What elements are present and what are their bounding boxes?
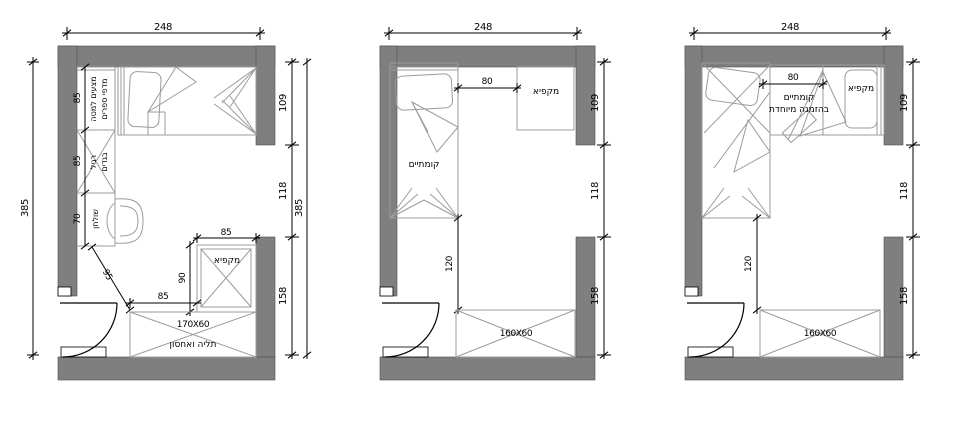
plan-b-clearances: 80 120	[445, 77, 521, 314]
dim-height-total: 385	[20, 199, 31, 217]
closet-size: 170X60	[177, 320, 210, 330]
closet-label: תליה ואחסון	[170, 340, 217, 350]
floor-plan-canvas: 248 385 109 118 158 385	[0, 0, 958, 441]
freezer-label: מקפיא	[214, 256, 240, 266]
bed-label-2: בהזמנה מיוחדת	[769, 105, 829, 115]
blanket	[148, 67, 196, 135]
dim-freezer-width: 85	[221, 228, 232, 238]
dim-clearance: 85	[158, 292, 169, 302]
desk-chair	[107, 199, 143, 244]
plan-c-bunk-bed: מקפיא קומתיים בהזמנה מיוחדת	[702, 63, 884, 218]
dim-clearance: 80	[788, 73, 799, 83]
freezer-label: מקפיא	[533, 87, 559, 97]
bed-label: קומתיים	[409, 160, 440, 170]
wall-top	[685, 46, 903, 67]
wall-left	[58, 46, 77, 296]
door-jamb-notch	[685, 287, 698, 296]
plan-c-dim-top: 248	[689, 22, 891, 40]
closet-size: 160X60	[500, 329, 533, 339]
pillow	[395, 74, 453, 111]
plan-b-dim-top: 248	[384, 22, 582, 40]
wall-bottom	[380, 357, 595, 380]
threshold	[688, 347, 733, 357]
ladder	[782, 110, 816, 142]
closet-size: 160X60	[804, 329, 837, 339]
plan-a-dim-right: 109 118 158 385	[278, 58, 311, 359]
wardrobe-mid-label-2: בגדים	[100, 152, 109, 172]
plan-b-closet: 160X60	[456, 310, 575, 357]
plan-a: 248 385 109 118 158 385	[20, 22, 311, 380]
dim-right-seg3: 158	[590, 287, 601, 305]
wardrobe-top-label-2: מדפי ספרים	[100, 79, 109, 120]
dim-wardrobe-seg2: 85	[73, 156, 83, 167]
plan-b-freezer: מקפיא	[517, 67, 574, 130]
dim-wardrobe-seg3: 70	[73, 213, 83, 224]
wall-right-upper	[256, 46, 275, 145]
desk-label: שולחן	[91, 209, 100, 229]
dim-bed-to-closet: 120	[744, 255, 754, 272]
dim-width: 248	[474, 22, 492, 33]
dim-right-seg1: 109	[590, 94, 601, 112]
dim-right-seg2: 118	[590, 182, 601, 200]
plan-a-bed	[118, 67, 256, 135]
wall-right-lower	[256, 237, 275, 357]
dim-right-seg3: 158	[278, 287, 289, 305]
plan-c-closet: 160X60	[760, 310, 880, 357]
plan-a-dim-top: 248	[62, 22, 265, 40]
dim-width: 248	[154, 22, 172, 33]
wardrobe-mid-label-1: רגיל	[89, 155, 98, 169]
dim-right-seg3: 158	[899, 287, 910, 305]
wall-left	[685, 46, 702, 296]
wall-top	[58, 46, 275, 67]
dim-right-total: 385	[294, 199, 305, 217]
plan-a-wardrobe-column: 85 85 70 מצעים למטה מדפי ספרים רגיל בגדי…	[73, 64, 143, 249]
freezer-label: מקפיא	[848, 84, 874, 94]
door-jamb-notch	[380, 287, 393, 296]
dim-width: 248	[781, 22, 799, 33]
wall-bottom	[58, 357, 275, 380]
floor-plan-drawing: 248 385 109 118 158 385	[0, 0, 958, 441]
plan-b-walls	[380, 46, 595, 380]
wall-top	[380, 46, 595, 67]
dim-right-seg1: 109	[899, 94, 910, 112]
dim-clearance: 80	[482, 77, 493, 87]
dim-wardrobe-seg1: 85	[73, 93, 83, 104]
bed-label-1: קומתיים	[784, 93, 815, 103]
wall-left	[380, 46, 397, 296]
plan-c: 248 109 118 158 מקפיא קומתיים בהזמנה מיו	[685, 22, 920, 380]
threshold	[383, 347, 428, 357]
plan-b: 248 109 118 158 קומתיים מקפיא	[380, 22, 611, 380]
door-jamb-notch	[58, 287, 71, 296]
plan-b-bed: קומתיים	[390, 63, 458, 218]
threshold	[61, 347, 106, 357]
plan-a-closet: 170X60 תליה ואחסון	[130, 312, 256, 357]
dim-right-seg2: 118	[899, 182, 910, 200]
wall-bottom	[685, 357, 903, 380]
dim-right-seg2: 118	[278, 182, 289, 200]
pillow	[705, 67, 761, 107]
wardrobe-top-label-1: מצעים למטה	[89, 76, 98, 121]
dim-right-seg1: 109	[278, 94, 289, 112]
dim-freezer-depth: 90	[178, 272, 188, 283]
dim-bed-to-closet: 120	[445, 255, 455, 272]
pillow	[845, 70, 877, 128]
plan-a-dim-left: 385	[20, 57, 39, 360]
